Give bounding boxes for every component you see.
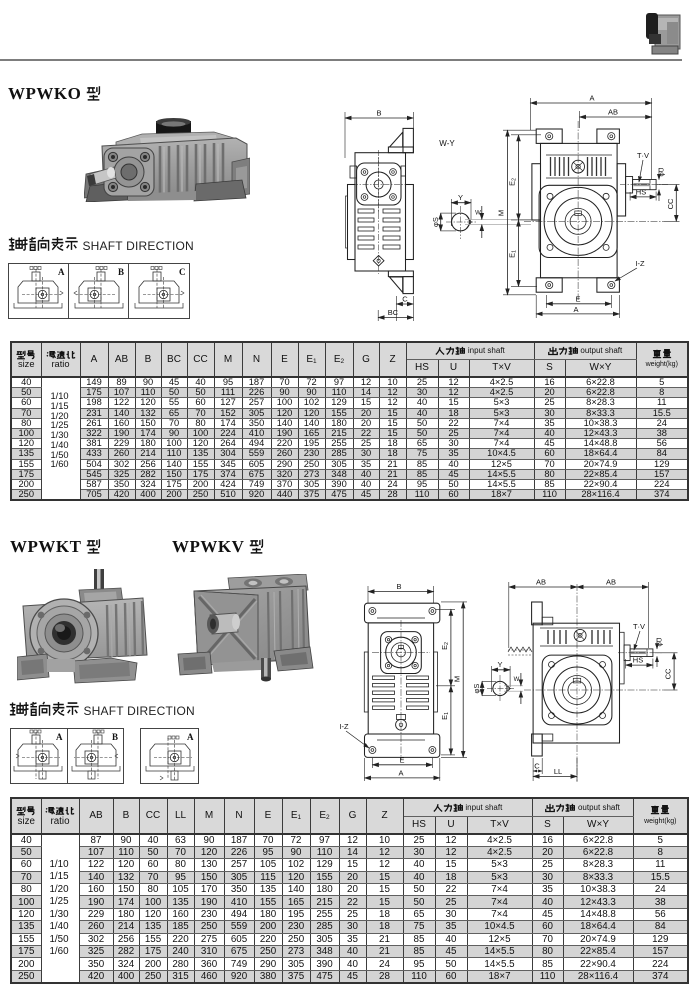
svg-text:M: M — [497, 210, 506, 216]
svg-text:AB: AB — [536, 578, 546, 587]
svg-text:φS: φS — [431, 217, 440, 227]
svg-text:CC: CC — [664, 668, 673, 679]
svg-text:E1: E1 — [507, 250, 517, 258]
svg-text:W: W — [475, 211, 481, 217]
svg-text:E: E — [399, 756, 404, 765]
svg-text:A: A — [589, 95, 594, 103]
svg-text:W-Y: W-Y — [439, 139, 455, 148]
svg-text:W: W — [514, 677, 520, 683]
svg-text:CC: CC — [666, 198, 675, 209]
svg-text:A: A — [573, 305, 578, 314]
svg-text:Y: Y — [458, 193, 463, 202]
svg-text:E2: E2 — [507, 178, 517, 186]
svg-text:BC: BC — [388, 308, 399, 317]
svg-text:I-Z: I-Z — [339, 722, 349, 731]
svg-text:φU: φU — [657, 637, 664, 646]
svg-text:φU: φU — [659, 167, 666, 176]
svg-text:φS: φS — [472, 684, 481, 694]
svg-text:T·V: T·V — [633, 622, 645, 631]
svg-text:C: C — [179, 267, 186, 277]
svg-text:AB: AB — [606, 578, 616, 587]
svg-text:A: A — [398, 769, 403, 778]
svg-text:C: C — [402, 295, 408, 304]
svg-text:AB: AB — [608, 108, 618, 117]
svg-text:B: B — [118, 267, 124, 277]
svg-text:I-Z: I-Z — [635, 259, 645, 268]
svg-text:A: A — [56, 732, 63, 742]
svg-text:Y: Y — [497, 660, 502, 669]
svg-text:B: B — [112, 732, 118, 742]
svg-text:E1: E1 — [440, 712, 450, 720]
svg-text:HS: HS — [636, 188, 646, 197]
svg-text:B: B — [396, 582, 401, 591]
svg-text:HS: HS — [633, 656, 643, 665]
svg-text:E2: E2 — [440, 642, 450, 650]
svg-text:M: M — [453, 676, 462, 682]
svg-text:A: A — [187, 732, 194, 742]
svg-text:A: A — [58, 267, 65, 277]
svg-text:B: B — [376, 109, 381, 118]
svg-text:LL: LL — [554, 767, 562, 776]
svg-text:C: C — [534, 762, 540, 771]
svg-text:T·V: T·V — [637, 151, 649, 160]
svg-text:E: E — [575, 295, 580, 304]
